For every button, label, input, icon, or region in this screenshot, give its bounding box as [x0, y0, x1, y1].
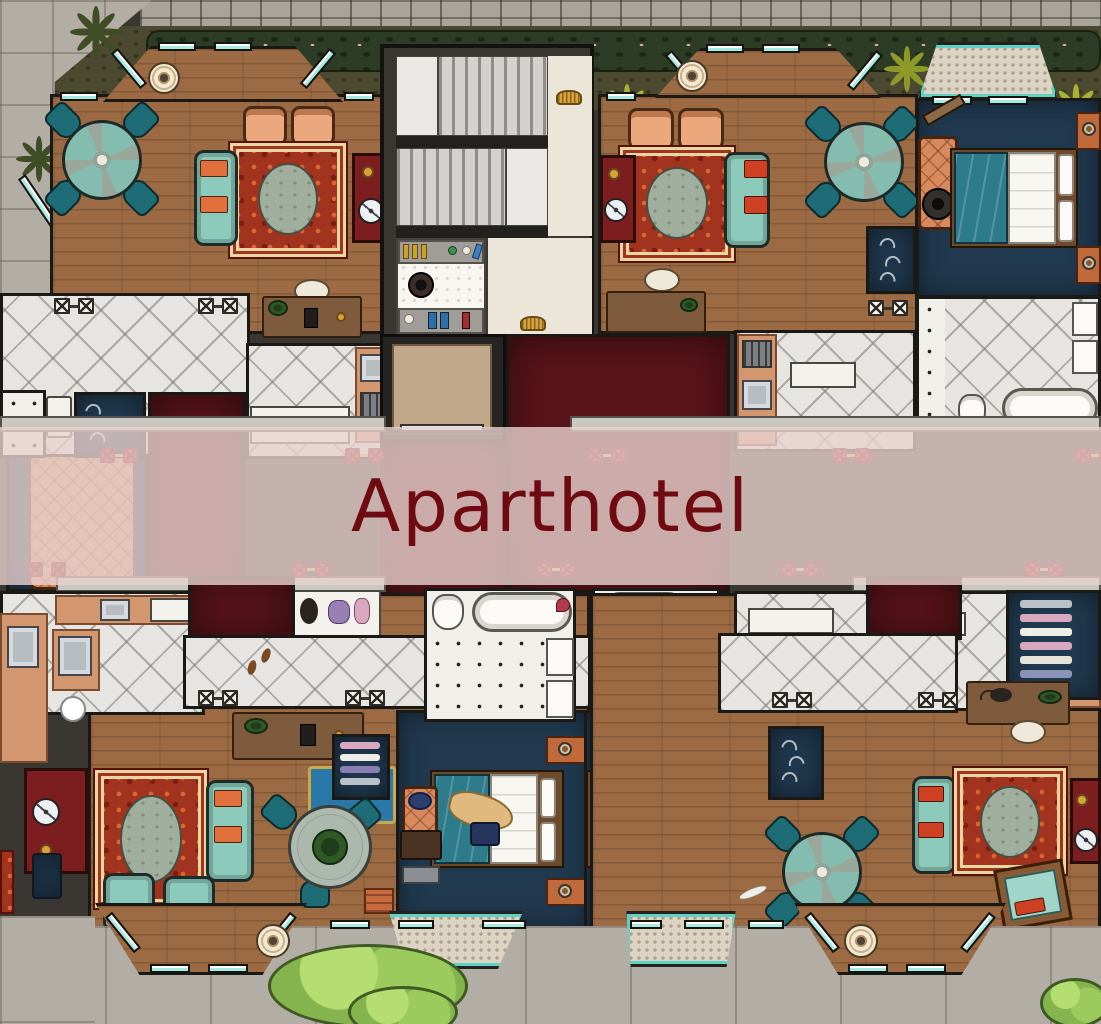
terrace-pavement — [0, 916, 95, 1024]
wall-vent-icon — [54, 298, 70, 314]
sofa-cushion — [200, 160, 228, 177]
desk-chair — [644, 268, 680, 292]
vent-link — [214, 305, 222, 308]
window — [706, 44, 744, 53]
wall-vent-icon — [78, 298, 94, 314]
pillow — [1058, 200, 1074, 242]
desk-speaker — [300, 724, 316, 746]
wall-sink — [546, 680, 574, 718]
clothes-item — [328, 600, 350, 624]
stair-hallway — [548, 56, 592, 236]
stair-divider — [396, 226, 548, 238]
window — [482, 920, 526, 929]
sofa-cushion — [918, 822, 944, 838]
stair-landing — [396, 56, 438, 136]
wall-vent-icon — [345, 690, 361, 706]
wall-vent-icon — [868, 300, 884, 316]
pillow — [1058, 154, 1074, 196]
wall-vent-icon — [198, 298, 214, 314]
clothes-item — [340, 778, 380, 785]
wall-sink — [1072, 340, 1098, 374]
aparthotel-floorplan-map: Aparthotel — [0, 0, 1101, 1024]
kitchen-sink — [100, 599, 130, 621]
kitchen-appliance — [790, 362, 856, 388]
wall-vent-icon — [796, 692, 812, 708]
kitchen-appliance — [748, 608, 834, 634]
window — [748, 920, 784, 929]
vent-link — [788, 699, 796, 702]
vent-link — [214, 697, 222, 700]
clock — [1074, 828, 1098, 852]
ceiling-light-fixture — [844, 924, 878, 958]
jar — [448, 246, 457, 255]
range — [150, 598, 192, 622]
bottle — [403, 244, 409, 259]
vent-link — [884, 307, 892, 310]
suitcase — [400, 830, 442, 860]
clock — [604, 198, 628, 222]
wall-lamp-icon — [556, 90, 582, 105]
kitchen-sink — [742, 380, 772, 410]
vent-link — [361, 697, 369, 700]
pillow — [540, 822, 556, 862]
sofa-cushion — [200, 196, 228, 213]
sofa-cushion — [744, 160, 768, 178]
window — [208, 964, 248, 973]
wall-vent-icon — [942, 692, 958, 708]
clock — [32, 798, 60, 826]
ceiling-light-fixture — [148, 62, 180, 94]
rug-oval-medallion — [646, 167, 708, 239]
clothes-item — [1020, 656, 1072, 664]
gold-cup — [336, 312, 346, 322]
title-banner: Aparthotel — [0, 427, 1101, 585]
box — [462, 312, 470, 329]
desk-speaker — [304, 308, 318, 328]
wall-sink — [1072, 302, 1098, 336]
window — [762, 44, 800, 53]
hat — [408, 792, 432, 810]
map-title: Aparthotel — [351, 464, 750, 548]
jar — [404, 314, 414, 324]
kitchen-sink — [58, 636, 92, 676]
bottle — [421, 244, 427, 259]
stair-flight — [396, 148, 506, 226]
window — [684, 920, 724, 929]
wall-vent-icon — [892, 300, 908, 316]
vent-link — [70, 305, 78, 308]
entry-bottom-right — [866, 576, 962, 640]
clothes-item — [354, 598, 370, 624]
bathtub — [472, 592, 572, 632]
clothes-item — [1020, 670, 1072, 678]
window — [398, 920, 434, 929]
bottle — [412, 244, 418, 259]
stair-flight — [438, 56, 548, 136]
potted-plant — [312, 829, 348, 865]
desk-lamp-green — [244, 718, 268, 734]
window — [906, 964, 946, 973]
window — [330, 920, 370, 929]
clothes-item — [340, 754, 380, 761]
cooking-pot — [408, 272, 434, 298]
toilet — [432, 594, 464, 630]
table-lamp-icon — [1082, 256, 1096, 270]
wall-vent-icon — [918, 692, 934, 708]
bed-sheet — [1008, 152, 1056, 244]
desk-plant — [680, 298, 698, 312]
cabinet-knob — [608, 168, 620, 180]
clothes-item — [1020, 614, 1072, 622]
floor-grate-icon — [520, 316, 546, 331]
pillow — [540, 778, 556, 818]
ceiling-light-fixture — [676, 60, 708, 92]
bathroom-tile-strip — [919, 299, 945, 429]
rose — [556, 598, 570, 612]
window — [848, 964, 888, 973]
box — [428, 312, 437, 329]
bush — [1040, 978, 1101, 1024]
clothes-item — [1020, 642, 1072, 650]
cabinet-knob — [362, 166, 374, 178]
stair-landing — [506, 148, 548, 226]
table-lamp-icon — [558, 884, 572, 898]
supply-shelf — [398, 240, 484, 264]
cabinet-knob — [1076, 794, 1088, 806]
clothes-item — [300, 598, 318, 624]
vent-link — [934, 699, 942, 702]
round-dining-table — [824, 122, 904, 202]
box — [440, 312, 449, 329]
stair-divider — [396, 136, 548, 148]
entry-bottom-left — [188, 576, 295, 640]
sofa-cushion — [744, 196, 768, 214]
table-lamp-icon — [558, 742, 572, 756]
window — [630, 920, 662, 929]
bench — [32, 853, 62, 899]
rug-oval-medallion — [258, 163, 318, 235]
clothes-item — [1020, 628, 1072, 636]
window — [214, 42, 252, 51]
window — [158, 42, 196, 51]
window — [344, 92, 374, 101]
wall-vent-icon — [222, 690, 238, 706]
wall-vent-icon — [222, 298, 238, 314]
clothes-item — [340, 766, 380, 773]
ceiling-light-fixture — [256, 924, 290, 958]
round-dining-table — [62, 120, 142, 200]
window — [606, 92, 636, 101]
desk-plant — [268, 300, 288, 316]
table-lamp-icon — [1082, 122, 1096, 136]
cot — [993, 858, 1073, 931]
rug-oval-medallion — [980, 786, 1040, 858]
clothes-item — [340, 742, 380, 749]
plate — [60, 696, 86, 722]
runner-rug — [0, 850, 14, 914]
tray — [402, 866, 440, 884]
wall-sink — [546, 638, 574, 676]
round-dining-table — [782, 832, 862, 912]
desk-chair — [1010, 720, 1046, 744]
jar — [462, 246, 471, 255]
wall-vent-icon — [772, 692, 788, 708]
rug-oval-medallion — [120, 795, 182, 883]
handbag — [470, 822, 500, 846]
window — [988, 96, 1028, 105]
brick-stack — [364, 888, 394, 914]
window — [60, 92, 98, 101]
wall-vent-icon — [198, 690, 214, 706]
sofa-cushion — [214, 826, 242, 843]
stove — [742, 340, 772, 368]
cot-mattress — [1004, 869, 1063, 921]
bed-blanket — [954, 152, 1008, 244]
window — [150, 964, 190, 973]
sofa-cushion — [918, 786, 944, 802]
stone-balcony — [918, 42, 1058, 100]
cat — [990, 688, 1012, 702]
clothes-item — [1020, 600, 1072, 608]
desk-lamp-green — [1038, 690, 1062, 704]
elevator-cab — [392, 344, 492, 430]
kitchen-sink — [7, 626, 39, 668]
wall-vent-icon — [369, 690, 385, 706]
sofa-cushion — [214, 790, 242, 807]
